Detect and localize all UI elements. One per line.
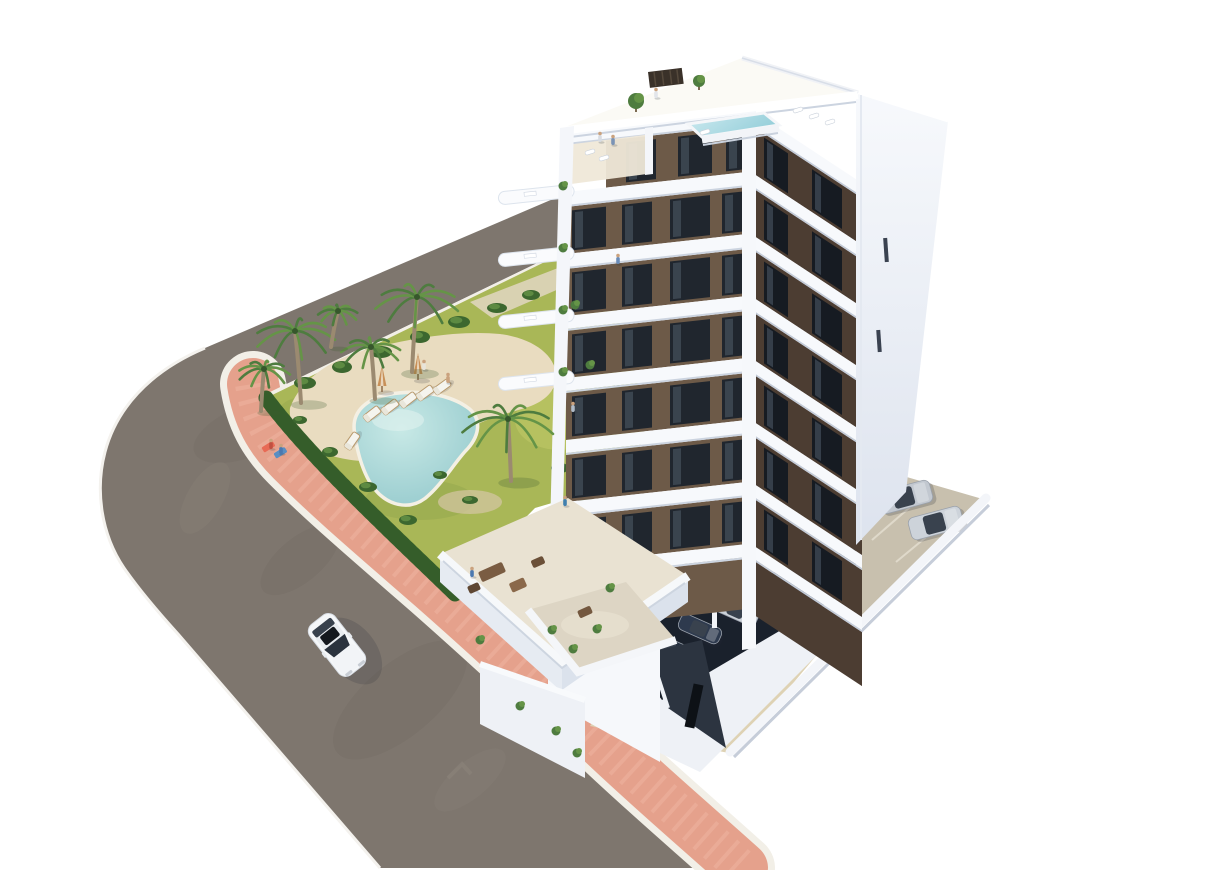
- corner-pilaster: [742, 104, 756, 650]
- facade-right: [748, 108, 862, 686]
- architectural-render: [0, 0, 1220, 870]
- render-canvas: [0, 0, 1220, 870]
- terrace-step-wall: [645, 127, 653, 175]
